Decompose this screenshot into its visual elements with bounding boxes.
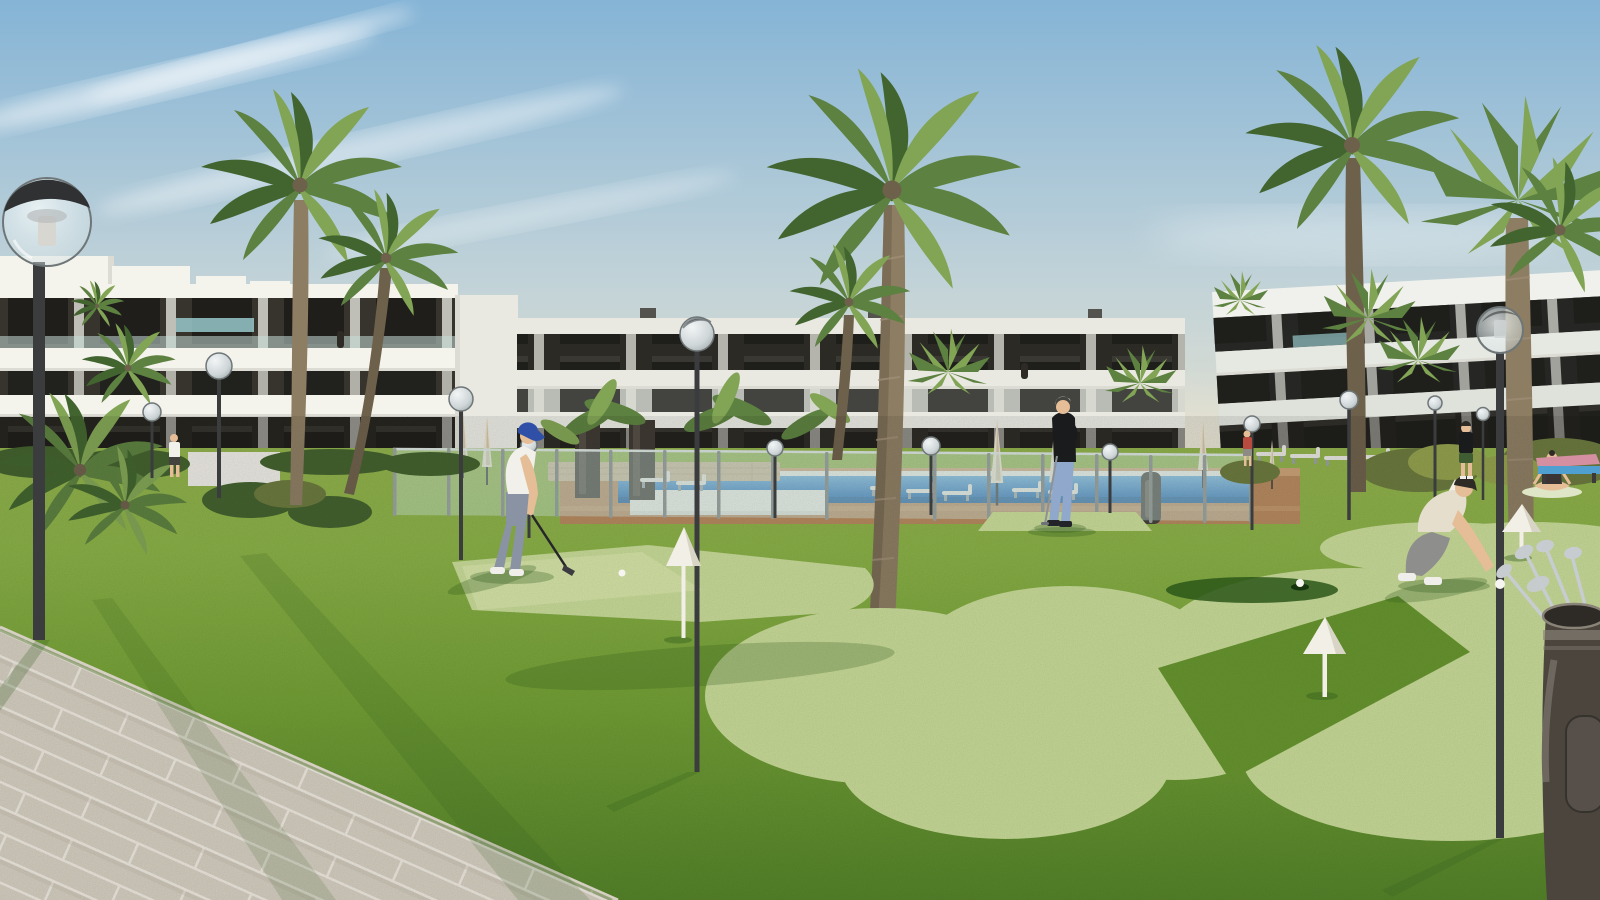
balcony-figure <box>1021 363 1028 379</box>
hole-shadow <box>1166 577 1338 603</box>
grass-texture <box>0 460 1600 900</box>
roof-glass-pool <box>176 318 254 332</box>
balcony-glass-rail <box>0 336 458 348</box>
green-details <box>1166 577 1338 603</box>
scene-svg <box>0 0 1600 900</box>
balcony-figure <box>337 331 344 348</box>
golf-ball <box>1495 579 1505 589</box>
golf-ball <box>1296 579 1304 587</box>
render-scene <box>0 0 1600 900</box>
golf-ball <box>619 570 626 577</box>
